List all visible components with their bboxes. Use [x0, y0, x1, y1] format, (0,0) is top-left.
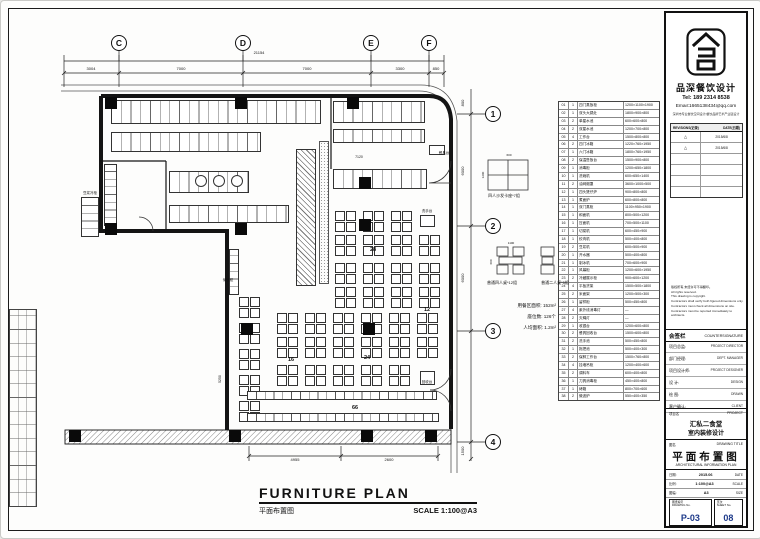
schedule-name: 切菜机 — [578, 228, 623, 235]
schedule-name: 餐具回收台 — [578, 330, 623, 337]
signature-row: 项目总监: PROJECT DIRECTOR — [666, 341, 746, 353]
project-name-line1: 汇私二食堂 — [666, 418, 746, 428]
schedule-row: 26 1 留样柜 500×450×800 — [559, 299, 659, 307]
schedule-size: 1220×760×1950 — [623, 141, 659, 148]
schedule-name: 四门蒸饭柜 — [578, 102, 623, 109]
plan-label: 回收台 — [422, 379, 433, 384]
schedule-qty: 2 — [569, 157, 578, 164]
schedule-no: 28 — [559, 315, 569, 322]
project-label-row: 项目名 PROJECT — [666, 408, 746, 417]
schedule-qty: 1 — [569, 386, 578, 393]
meta-rows: 日期: 2015.06 DATE 比例: 1:100@A3 SCALE 图幅: … — [666, 471, 746, 498]
revision-date — [701, 154, 742, 164]
schedule-size: 600×400×800 — [623, 370, 659, 377]
plan-label: 800 — [460, 99, 465, 106]
schedule-row: 13 1 煮面炉 600×800×800 — [559, 197, 659, 205]
stat-line: 人均面积: 1.2m² — [469, 322, 556, 333]
signature-role-cn: 设 计: — [669, 377, 679, 388]
schedule-name: 四头煲仔炉 — [578, 189, 623, 196]
schedule-qty: 1 — [569, 220, 578, 227]
area-stats: 用餐区面积: 152m²座位数: 126个人均面积: 1.2m² — [469, 300, 556, 333]
plan-label: 2600 — [385, 457, 395, 462]
revision-mark: △ — [671, 143, 701, 153]
schedule-name: 微波炉 — [578, 393, 623, 400]
schedule-no: 11 — [559, 181, 569, 188]
schedule-size: 1100×950×1900 — [623, 204, 659, 211]
signature-row: 部门经理: DEPT. MANAGER — [666, 353, 746, 365]
plan-label: 5250 — [218, 375, 222, 383]
schedule-no: 07 — [559, 149, 569, 156]
number-boxes: 图纸编号 DRAWING No. P-03 页次 SHEET No. 08 — [669, 499, 743, 526]
schedule-size: 500×450×800 — [623, 299, 659, 306]
schedule-no: 26 — [559, 299, 569, 306]
plan-label: 850 — [433, 66, 440, 71]
schedule-row: 25 2 米面架 1200×500×300 — [559, 291, 659, 299]
schedule-no: 12 — [559, 189, 569, 196]
company-tagline: 深圳市专业餐饮空间设计|餐饮品牌艺术产业链设计 — [666, 112, 746, 116]
schedule-size: 900×600×1200 — [623, 275, 659, 282]
schedule-qty: 4 — [569, 362, 578, 369]
signature-role-cn: 项目总监: — [669, 341, 686, 352]
revisions-header-left: REVISIONS(记录) — [671, 124, 707, 131]
drawing-number-cell: 图纸编号 DRAWING No. P-03 — [669, 499, 712, 526]
meta-value: A3 — [704, 489, 709, 497]
note-line: Contractors must be reported immediately… — [671, 309, 744, 318]
schedule-qty: 1 — [569, 149, 578, 156]
schedule-no: 38 — [559, 393, 569, 400]
revision-row — [671, 187, 742, 197]
schedule-no: 16 — [559, 220, 569, 227]
plan-label: 16 — [288, 357, 294, 363]
schedule-name: 挂墙吊柜 — [578, 362, 623, 369]
schedule-size: 1500×800×800 — [623, 134, 659, 141]
equipment-schedule-table: 01 1 四门蒸饭柜 1200×1100×1900 02 1 双头大锅灶 180… — [558, 101, 660, 401]
plan-label: 12 — [424, 307, 430, 313]
schedule-no: 27 — [559, 307, 569, 314]
schedule-no: 19 — [559, 244, 569, 251]
drawing-sheet: CDEF123421154300470007000330085080060006… — [0, 0, 760, 539]
stat-line: 座位数: 126个 — [469, 311, 556, 322]
schedule-qty: 2 — [569, 370, 578, 377]
schedule-size: — — [623, 307, 659, 314]
copyright-notes: 版权所有,未经许可不得翻印。All rights reserved.This d… — [671, 285, 744, 318]
schedule-row: 05 4 工作台 1500×800×800 — [559, 134, 659, 142]
schedule-name: 工作台 — [578, 134, 623, 141]
company-email: Email:1665138434@qq.com — [666, 104, 746, 109]
meta-label-cn: 图幅: — [669, 489, 677, 497]
schedule-name: 单星水池 — [578, 118, 623, 125]
meta-label-en: DATE — [735, 471, 743, 479]
plan-label: 600 — [489, 259, 493, 264]
plan-label: E — [368, 38, 374, 48]
schedule-size: 800×700×600 — [623, 386, 659, 393]
schedule-size: 1200×600×800 — [623, 323, 659, 330]
schedule-name: 收银台 — [578, 323, 623, 330]
plan-label: 餐具台 — [439, 150, 450, 155]
plan-label: 洗手台 — [422, 208, 433, 213]
plan-label: 4 — [491, 437, 496, 447]
schedule-name: 保鲜工作台 — [578, 354, 623, 361]
meta-label-cn: 日期: — [669, 471, 677, 479]
schedule-qty: 2 — [569, 338, 578, 345]
footer-title-block: FURNITURE PLAN 平面布置图 SCALE 1:100@A3 — [259, 485, 477, 516]
schedule-row: 09 1 消毒柜 1200×650×1800 — [559, 165, 659, 173]
revision-mark — [671, 154, 701, 164]
schedule-qty: 1 — [569, 189, 578, 196]
project-name-line2: 室内装修设计 — [666, 428, 746, 437]
stat-line: 用餐区面积: 152m² — [469, 300, 556, 311]
schedule-size: 3600×1000×500 — [623, 181, 659, 188]
signature-role-en: DEPT. MANAGER — [717, 353, 743, 364]
schedule-no: 04 — [559, 126, 569, 133]
meta-label-cn: 比例: — [669, 480, 677, 488]
schedule-size: 1200×1100×1900 — [623, 102, 659, 109]
schedule-row: 35 2 调料车 600×400×800 — [559, 370, 659, 378]
schedule-row: 04 2 双星水池 1200×700×800 — [559, 126, 659, 134]
schedule-qty: 1 — [569, 102, 578, 109]
drawing-no-label-en: DRAWING No. — [672, 504, 691, 507]
schedule-row: 06 2 四门冰箱 1220×760×1950 — [559, 141, 659, 149]
meta-label-en: SIZE — [736, 489, 743, 497]
drawing-title-main: 平面布置图 — [666, 449, 746, 464]
schedule-name: 消毒柜 — [578, 165, 623, 172]
schedule-name: 双头大锅灶 — [578, 110, 623, 117]
schedule-row: 36 1 刀具消毒柜 450×400×800 — [559, 378, 659, 386]
revisions-header: REVISIONS(记录) DATE(日期) — [671, 124, 742, 132]
plan-label: 66 — [352, 405, 358, 411]
schedule-size: 900×800×800 — [623, 189, 659, 196]
plan-label: 2 — [491, 221, 496, 231]
schedule-no: 15 — [559, 212, 569, 219]
schedule-no: 14 — [559, 204, 569, 211]
schedule-size: 600×450×900 — [623, 228, 659, 235]
schedule-no: 37 — [559, 386, 569, 393]
schedule-name: 风幕柜 — [578, 267, 623, 274]
plan-label: 7120 — [355, 155, 363, 159]
plan-label: 6000 — [460, 166, 465, 176]
schedule-size: 1500×760×800 — [623, 354, 659, 361]
schedule-name: 油网烟罩 — [578, 181, 623, 188]
countersignature-en: COUNTERSIGNATURE — [705, 334, 743, 338]
plan-label: 1500 — [460, 446, 465, 456]
plan-label: 24 — [364, 355, 371, 361]
schedule-qty: 1 — [569, 173, 578, 180]
schedule-size: 500×400×800 — [623, 252, 659, 259]
schedule-row: 01 1 四门蒸饭柜 1200×1100×1900 — [559, 102, 659, 110]
meta-row: 日期: 2015.06 DATE — [666, 471, 746, 480]
schedule-qty: 4 — [569, 307, 578, 314]
schedule-name: 绞肉机 — [578, 236, 623, 243]
plan-label: 600 — [506, 153, 511, 157]
schedule-size: 600×600×800 — [623, 118, 659, 125]
schedule-row: 38 2 微波炉 550×400×350 — [559, 393, 659, 400]
drawing-number: P-03 — [670, 513, 711, 523]
meta-value: 2015.06 — [699, 471, 713, 479]
schedule-row: 28 2 灭蝇灯 — — [559, 315, 659, 323]
revision-date: 2015/6/8 — [701, 143, 742, 153]
schedule-name: 洗手池 — [578, 338, 623, 345]
schedule-size: 1200×600×1950 — [623, 267, 659, 274]
sheet-number: 08 — [715, 513, 742, 523]
countersignature-cn: 会签栏 — [669, 332, 686, 340]
signature-role-en: PROJECT DIRECTOR — [711, 341, 743, 352]
schedule-row: 37 1 烤箱 800×700×600 — [559, 386, 659, 394]
schedule-qty: 1 — [569, 228, 578, 235]
schedule-row: 20 1 开水器 500×400×800 — [559, 252, 659, 260]
schedule-name: 保温售饭台 — [578, 157, 623, 164]
plan-label: 1200 — [481, 171, 485, 178]
plan-label: 4955 — [291, 457, 301, 462]
plan-label: 7000 — [303, 66, 313, 71]
two-table-caption: 普通二人桌*5组 — [525, 280, 585, 286]
schedule-size: 1800×900×800 — [623, 110, 659, 117]
schedule-row: 14 1 双门蒸柜 1100×950×1900 — [559, 204, 659, 212]
plan-label: D — [240, 38, 246, 48]
schedule-size: 500×400×300 — [623, 346, 659, 353]
schedule-row: 11 2 油网烟罩 3600×1000×500 — [559, 181, 659, 189]
schedule-qty: 2 — [569, 393, 578, 400]
schedule-name: 双门蒸柜 — [578, 204, 623, 211]
schedule-row: 15 1 和面机 800×500×1200 — [559, 212, 659, 220]
revision-row: △ 2015/6/8 — [671, 143, 742, 154]
schedule-name: 六门冰箱 — [578, 149, 623, 156]
schedule-no: 22 — [559, 267, 569, 274]
revision-mark — [671, 165, 701, 175]
schedule-size: 700×600×900 — [623, 260, 659, 267]
schedule-qty: 2 — [569, 315, 578, 322]
schedule-size: 450×400×800 — [623, 378, 659, 385]
schedule-size: 1200×500×300 — [623, 291, 659, 298]
schedule-qty: 1 — [569, 299, 578, 306]
schedule-size: 1500×500×1800 — [623, 283, 659, 290]
schedule-name: 和面机 — [578, 212, 623, 219]
schedule-no: 30 — [559, 330, 569, 337]
plan-label: 28 — [370, 247, 376, 253]
plan-label: C — [116, 38, 122, 48]
signature-role-cn: 绘 图: — [669, 389, 679, 400]
plan-label: 1100 — [508, 241, 515, 245]
revision-row: △ 2015/6/8 — [671, 132, 742, 143]
schedule-qty: 4 — [569, 134, 578, 141]
schedule-no: 33 — [559, 354, 569, 361]
plan-label: 21154 — [254, 50, 266, 55]
schedule-row: 12 1 四头煲仔炉 900×800×800 — [559, 189, 659, 197]
schedule-name: 紫外线消毒灯 — [578, 307, 623, 314]
project-label-cn: 项目名 — [669, 411, 679, 416]
schedule-row: 34 4 挂墙吊柜 1200×400×600 — [559, 362, 659, 370]
schedule-name: 豆浆机 — [578, 244, 623, 251]
revision-date — [701, 187, 742, 197]
drawing-label-row: 图名 DRAWING TITLE — [666, 439, 746, 448]
signature-role-cn: 项目设计师: — [669, 365, 690, 376]
plan-label: 豆浆冷柜 — [83, 190, 97, 195]
schedule-qty: 2 — [569, 126, 578, 133]
schedule-no: 02 — [559, 110, 569, 117]
revision-date: 2015/6/8 — [701, 132, 742, 142]
schedule-no: 21 — [559, 260, 569, 267]
project-label-en: PROJECT — [727, 411, 743, 415]
plan-label: 3004 — [87, 66, 97, 71]
schedule-qty: 2 — [569, 354, 578, 361]
schedule-qty: 1 — [569, 165, 578, 172]
schedule-name: 拖把池 — [578, 346, 623, 353]
schedule-row: 03 2 单星水池 600×600×800 — [559, 118, 659, 126]
signature-role-en: DRAWN — [731, 389, 743, 400]
drawing-label-cn: 图名 — [669, 442, 676, 447]
meta-value: 1:100@A3 — [695, 480, 713, 488]
schedule-qty: 2 — [569, 330, 578, 337]
schedule-size: 600×500×900 — [623, 244, 659, 251]
schedule-no: 36 — [559, 378, 569, 385]
schedule-row: 17 1 切菜机 600×450×900 — [559, 228, 659, 236]
schedule-name: 煮面炉 — [578, 197, 623, 204]
revision-mark — [671, 187, 701, 197]
meta-label-en: SCALE — [733, 480, 743, 488]
schedule-name: 开水器 — [578, 252, 623, 259]
schedule-row: 16 1 压面机 700×500×1100 — [559, 220, 659, 228]
schedule-no: 18 — [559, 236, 569, 243]
plan-label: 1 — [491, 109, 496, 119]
schedule-qty: 1 — [569, 346, 578, 353]
schedule-size: 500×400×800 — [623, 236, 659, 243]
schedule-name: 刀具消毒柜 — [578, 378, 623, 385]
revision-mark — [671, 176, 701, 186]
schedule-qty: 1 — [569, 260, 578, 267]
drawing-title-cn: 平面布置图 — [259, 506, 294, 516]
schedule-size: 600×650×1400 — [623, 173, 659, 180]
signature-role-en: PROJECT DESIGNER — [711, 365, 743, 376]
plan-label: 7000 — [177, 66, 187, 71]
schedule-row: 22 1 风幕柜 1200×600×1950 — [559, 267, 659, 275]
sheet-number-cell: 页次 SHEET No. 08 — [714, 499, 743, 526]
schedule-row: 32 1 拖把池 500×400×300 — [559, 346, 659, 354]
title-block: 品深餐饮设计 Tel: 189 2314 8538 Email:16651384… — [664, 11, 748, 528]
schedule-no: 05 — [559, 134, 569, 141]
schedule-no: 17 — [559, 228, 569, 235]
signature-role-cn: 部门经理: — [669, 353, 686, 364]
schedule-no: 32 — [559, 346, 569, 353]
schedule-name: 留样柜 — [578, 299, 623, 306]
schedule-qty: 1 — [569, 197, 578, 204]
schedule-name: 洗碗机 — [578, 173, 623, 180]
schedule-name: 压面机 — [578, 220, 623, 227]
schedule-size: 600×800×800 — [623, 197, 659, 204]
revisions-header-right: DATE(日期) — [707, 124, 743, 131]
note-line: Contractors must check all dimensions on… — [671, 304, 744, 309]
company-tel: Tel: 189 2314 8538 — [666, 95, 746, 101]
schedule-qty: 2 — [569, 181, 578, 188]
schedule-qty: 1 — [569, 378, 578, 385]
schedule-row: 21 1 制冰机 700×600×900 — [559, 260, 659, 268]
schedule-no: 29 — [559, 323, 569, 330]
schedule-no: 35 — [559, 370, 569, 377]
revision-row — [671, 165, 742, 176]
schedule-name: 制冰机 — [578, 260, 623, 267]
revision-mark: △ — [671, 132, 701, 142]
plan-label: F — [426, 38, 431, 48]
schedule-size: 1200×700×800 — [623, 126, 659, 133]
left-margin-key-table — [9, 309, 37, 507]
schedule-qty: 1 — [569, 236, 578, 243]
booth-caption: 四人沙发卡座*7组 — [459, 193, 549, 199]
company-logo-icon — [686, 27, 726, 77]
schedule-row: 30 2 餐具回收台 1500×600×800 — [559, 330, 659, 338]
drawing-title-en: FURNITURE PLAN — [259, 485, 477, 504]
schedule-no: 13 — [559, 197, 569, 204]
schedule-no: 25 — [559, 291, 569, 298]
signature-row: 设 计: DESIGN — [666, 377, 746, 389]
plan-label: 储餐柜 — [223, 277, 234, 282]
revision-row — [671, 176, 742, 187]
schedule-name: 烤箱 — [578, 386, 623, 393]
schedule-qty: 2 — [569, 141, 578, 148]
drawing-title-sub: ARCHITECTURAL INFORMATION PLAN — [666, 463, 746, 470]
signature-role-en: DESIGN — [731, 377, 743, 388]
schedule-row: 08 2 保温售饭台 1500×900×800 — [559, 157, 659, 165]
schedule-row: 31 2 洗手池 500×450×800 — [559, 338, 659, 346]
schedule-row: 19 2 豆浆机 600×500×900 — [559, 244, 659, 252]
schedule-no: 31 — [559, 338, 569, 345]
schedule-row: 07 1 六门冰箱 1800×760×1950 — [559, 149, 659, 157]
schedule-name: 双星水池 — [578, 126, 623, 133]
schedule-qty: 1 — [569, 204, 578, 211]
schedule-no: 03 — [559, 118, 569, 125]
schedule-no: 10 — [559, 173, 569, 180]
revision-date — [701, 165, 742, 175]
schedule-name: 调料车 — [578, 370, 623, 377]
signature-row: 绘 图: DRAWN — [666, 389, 746, 401]
schedule-name: 四门冰箱 — [578, 141, 623, 148]
schedule-size: 1500×600×800 — [623, 330, 659, 337]
schedule-row: 10 1 洗碗机 600×650×1400 — [559, 173, 659, 181]
schedule-qty: 1 — [569, 110, 578, 117]
meta-row: 图幅: A3 SIZE — [666, 489, 746, 498]
schedule-size: 700×500×1100 — [623, 220, 659, 227]
meta-row: 比例: 1:100@A3 SCALE — [666, 480, 746, 489]
company-name: 品深餐饮设计 — [666, 81, 746, 94]
schedule-size: 800×500×1200 — [623, 212, 659, 219]
signature-rows: 项目总监: PROJECT DIRECTOR 部门经理: DEPT. MANAG… — [666, 341, 746, 413]
schedule-name: 灭蝇灯 — [578, 315, 623, 322]
schedule-no: 09 — [559, 165, 569, 172]
schedule-size: — — [623, 315, 659, 322]
schedule-name: 米面架 — [578, 291, 623, 298]
schedule-qty: 1 — [569, 267, 578, 274]
schedule-size: 1200×650×1800 — [623, 165, 659, 172]
schedule-no: 01 — [559, 102, 569, 109]
schedule-size: 1200×400×600 — [623, 362, 659, 369]
schedule-no: 20 — [559, 252, 569, 259]
schedule-no: 06 — [559, 141, 569, 148]
schedule-row: 29 1 收银台 1200×600×800 — [559, 323, 659, 331]
schedule-row: 27 4 紫外线消毒灯 — — [559, 307, 659, 315]
schedule-qty: 1 — [569, 323, 578, 330]
drawing-label-en: DRAWING TITLE — [717, 442, 743, 446]
drawing-scale: SCALE 1:100@A3 — [413, 506, 477, 516]
schedule-no: 34 — [559, 362, 569, 369]
revision-date — [701, 176, 742, 186]
schedule-no: 08 — [559, 157, 569, 164]
schedule-row: 02 1 双头大锅灶 1800×900×800 — [559, 110, 659, 118]
schedule-size: 1500×900×800 — [623, 157, 659, 164]
revisions-table: REVISIONS(记录) DATE(日期) △ 2015/6/8 △ 2015… — [670, 123, 743, 198]
schedule-qty: 1 — [569, 252, 578, 259]
schedule-size: 500×450×800 — [623, 338, 659, 345]
schedule-qty: 2 — [569, 291, 578, 298]
schedule-size: 550×400×350 — [623, 393, 659, 400]
schedule-row: 33 2 保鲜工作台 1500×760×800 — [559, 354, 659, 362]
schedule-row: 18 1 绞肉机 500×400×800 — [559, 236, 659, 244]
